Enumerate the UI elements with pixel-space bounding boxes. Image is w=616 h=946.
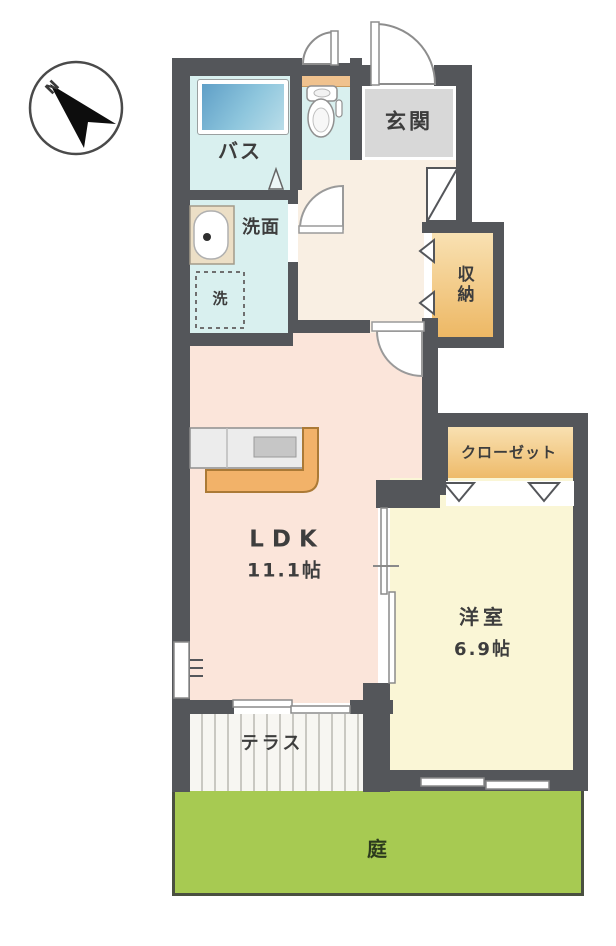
western-room-window [421,778,549,789]
garden-label: 庭 [367,839,387,859]
washroom-sink [190,206,234,264]
shoe-cabinet-diagonal [428,169,457,220]
washroom-label: 洗面 [242,219,280,237]
ldk-label: LDK [249,529,325,552]
storage-label: 収納 [455,265,472,305]
kitchen-counter [190,428,318,492]
closet-label: クローゼット [461,446,557,461]
terrace-label: テラス [241,735,304,753]
floor-plan: N バス 玄関 洗面 洗 収納 クローゼット LDK 11.1帖 洋室 6.9帖… [0,0,616,946]
ldk-area-label: 11.1帖 [247,562,323,581]
closet-folding-door [444,481,574,506]
storage-folding-door [420,240,434,314]
compass: N [26,58,126,158]
western-room-area-label: 6.9帖 [454,641,512,659]
western-room-label: 洋室 [459,607,507,627]
toilet-fixture [307,86,342,137]
bath-label: バス [218,141,262,161]
washroom-door-swing [299,186,343,233]
bath-door-marker [269,169,283,189]
ldk-side-window [174,642,203,698]
ldk-western-sliding-door [373,508,399,683]
terrace-sliding-door [233,700,350,713]
entrance-label: 玄関 [385,112,433,133]
ldk-door-swing [372,322,424,376]
laundry-label: 洗 [212,292,227,307]
toilet-door-swing [303,31,338,65]
entrance-door-swing [371,22,435,85]
